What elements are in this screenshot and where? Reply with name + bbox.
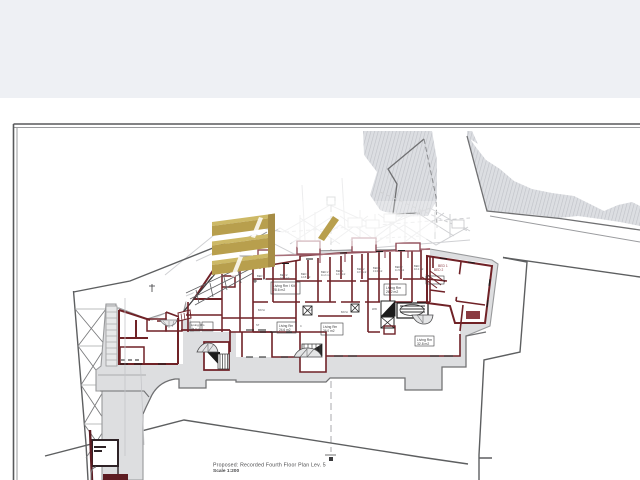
svg-text:26.2 m2: 26.2 m2 [386,290,398,294]
svg-text:Scale 1:200: Scale 1:200 [213,468,239,474]
svg-text:BED 2: BED 2 [434,268,443,272]
svg-text:24.6 m2: 24.6 m2 [279,328,291,332]
svg-text:10.2 m2: 10.2 m2 [414,267,424,271]
svg-text:10.4 m2: 10.4 m2 [280,276,290,280]
svg-text:32.8 m2: 32.8 m2 [417,342,429,346]
svg-text:Proposed: Recorded Fourth Floo: Proposed: Recorded Fourth Floor Plan Lev… [213,463,326,469]
svg-text:ST: ST [256,323,260,327]
svg-text:12.6 m2: 12.6 m2 [336,272,346,276]
svg-text:12.1 m2: 12.1 m2 [257,277,267,281]
svg-text:26.0 m2: 26.0 m2 [323,329,335,333]
svg-text:W/D: W/D [372,307,377,311]
svg-text:BATH: BATH [258,308,265,312]
svg-text:HALL: HALL [306,308,313,312]
svg-text:28.6 m2: 28.6 m2 [273,288,285,292]
svg-text:24.0 m: 24.0 m [191,327,201,331]
svg-text:11.5 m2: 11.5 m2 [395,268,405,272]
svg-text:11.2 m2: 11.2 m2 [321,273,331,277]
svg-text:C: C [300,324,302,328]
svg-text:10.9 m2: 10.9 m2 [357,270,367,274]
svg-text:12.8 m2: 12.8 m2 [301,275,311,279]
svg-text:13.0 m2: 13.0 m2 [373,269,383,273]
svg-text:BATH: BATH [341,310,348,314]
